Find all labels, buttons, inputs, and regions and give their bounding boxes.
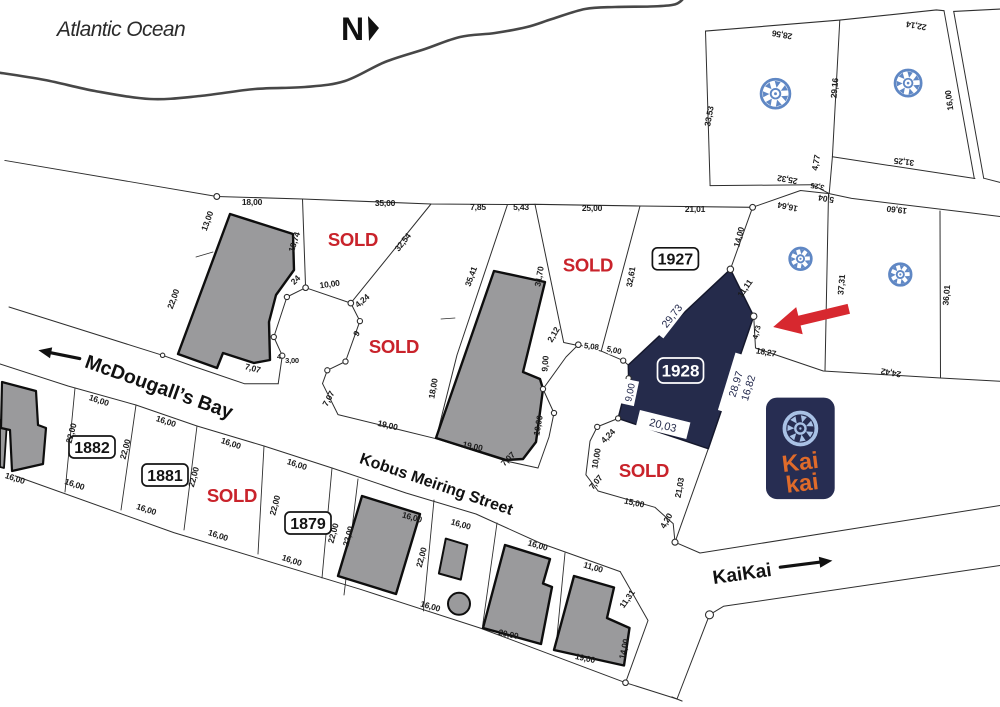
svg-text:29,16: 29,16 <box>829 77 841 99</box>
svg-text:1882: 1882 <box>74 440 110 457</box>
svg-text:1927: 1927 <box>658 252 694 269</box>
svg-text:1881: 1881 <box>147 468 183 485</box>
svg-text:SOLD: SOLD <box>619 460 669 481</box>
svg-text:Atlantic Ocean: Atlantic Ocean <box>55 18 185 41</box>
svg-text:1879: 1879 <box>290 516 326 533</box>
svg-text:7,85: 7,85 <box>470 202 486 212</box>
svg-text:36,01: 36,01 <box>940 284 952 306</box>
svg-text:3,00: 3,00 <box>285 356 299 365</box>
svg-text:kai: kai <box>784 468 820 498</box>
svg-text:1928: 1928 <box>662 362 700 381</box>
svg-text:9,00: 9,00 <box>539 355 550 372</box>
svg-text:SOLD: SOLD <box>328 229 378 250</box>
svg-text:SOLD: SOLD <box>207 485 257 506</box>
svg-text:25,00: 25,00 <box>582 203 603 213</box>
svg-text:SOLD: SOLD <box>369 336 419 357</box>
svg-text:SOLD: SOLD <box>563 255 613 276</box>
svg-text:N: N <box>341 11 364 47</box>
svg-text:35,00: 35,00 <box>375 198 396 208</box>
svg-text:21,01: 21,01 <box>685 204 706 214</box>
svg-text:37,31: 37,31 <box>835 274 847 296</box>
svg-text:18,00: 18,00 <box>242 197 263 207</box>
svg-text:5,43: 5,43 <box>513 202 529 212</box>
